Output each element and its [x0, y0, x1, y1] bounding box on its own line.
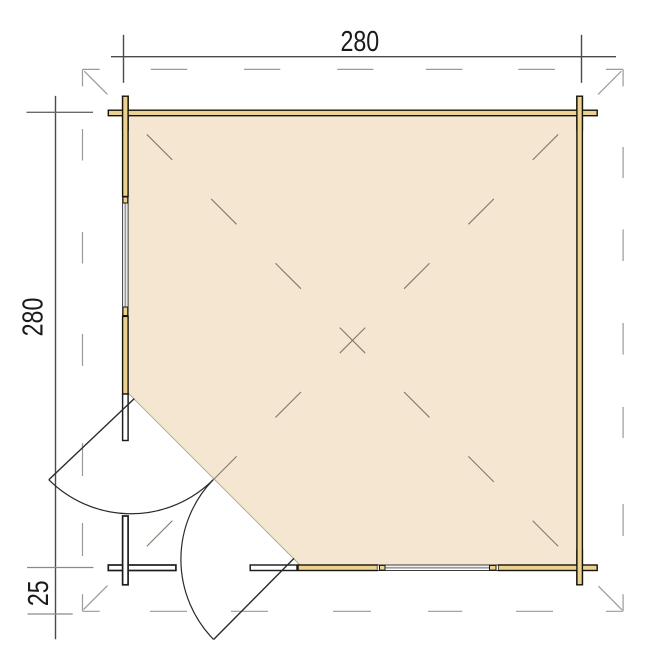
svg-text:280: 280 [16, 298, 49, 337]
svg-text:25: 25 [21, 580, 54, 606]
svg-text:280: 280 [340, 25, 379, 58]
